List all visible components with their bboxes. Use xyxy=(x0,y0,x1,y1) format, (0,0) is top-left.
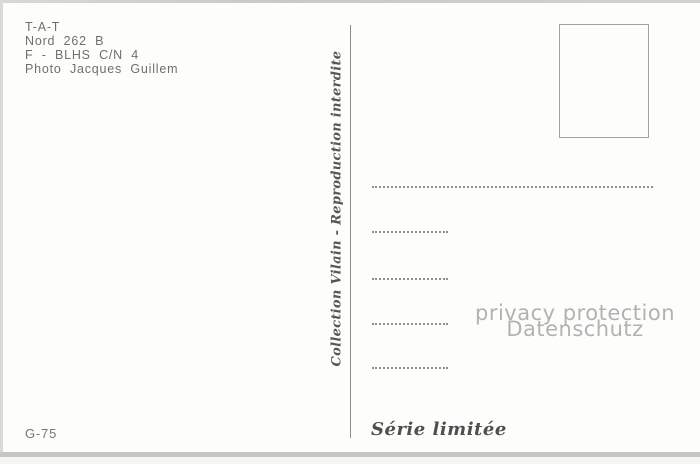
address-dotted-line xyxy=(372,367,448,369)
postcard-back-scan: T-A-T Nord 262 B F - BLHS C/N 4 Photo Ja… xyxy=(0,0,700,464)
stamp-box xyxy=(559,24,649,138)
address-dotted-line xyxy=(372,323,448,325)
scan-background-strip xyxy=(0,457,700,464)
catalog-code: G-75 xyxy=(25,426,57,441)
series-label: Série limitée xyxy=(371,419,507,440)
publisher-block: T-A-T Nord 262 B F - BLHS C/N 4 Photo Ja… xyxy=(25,20,178,76)
address-dotted-line xyxy=(372,186,653,188)
publisher-line-aircraft: Nord 262 B xyxy=(25,34,178,48)
collection-note: Collection Vilain - Reproduction interdi… xyxy=(330,97,347,367)
publisher-line-registration: F - BLHS C/N 4 xyxy=(25,48,178,62)
scan-edge-left xyxy=(0,0,3,456)
publisher-line-airline: T-A-T xyxy=(25,20,178,34)
address-dotted-line xyxy=(372,231,448,233)
publisher-line-photo-credit: Photo Jacques Guillem xyxy=(25,62,178,76)
divider-line xyxy=(350,25,351,438)
address-dotted-line xyxy=(372,278,448,280)
scan-edge-top xyxy=(0,0,700,3)
privacy-watermark: privacy protection Datenschutz xyxy=(455,305,695,337)
